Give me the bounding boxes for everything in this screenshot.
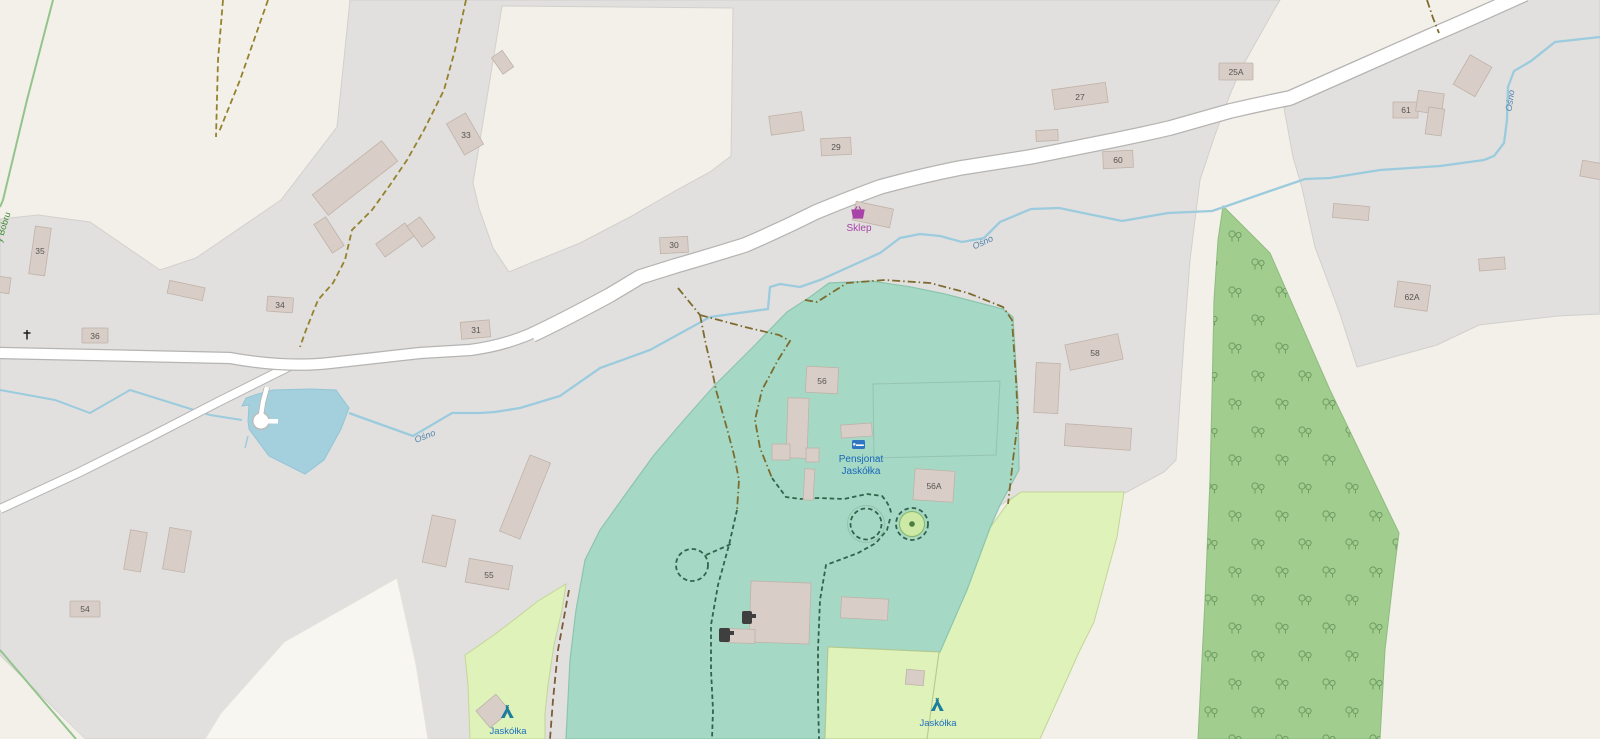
svg-text:29: 29 bbox=[831, 142, 841, 152]
svg-text:56A: 56A bbox=[926, 481, 941, 491]
svg-text:62A: 62A bbox=[1404, 292, 1419, 302]
svg-text:54: 54 bbox=[80, 604, 90, 614]
svg-text:60: 60 bbox=[1113, 155, 1123, 165]
svg-text:55: 55 bbox=[484, 570, 494, 580]
svg-text:61: 61 bbox=[1401, 105, 1411, 115]
svg-text:34: 34 bbox=[275, 300, 285, 310]
svg-text:58: 58 bbox=[1090, 348, 1100, 358]
svg-text:Jaskółka: Jaskółka bbox=[842, 466, 881, 477]
svg-text:Sklep: Sklep bbox=[846, 223, 871, 234]
svg-text:Pensjonat: Pensjonat bbox=[839, 454, 884, 465]
svg-text:30: 30 bbox=[669, 240, 679, 250]
svg-text:56: 56 bbox=[817, 376, 827, 386]
svg-text:31: 31 bbox=[471, 325, 481, 335]
svg-text:36: 36 bbox=[90, 331, 100, 341]
svg-text:27: 27 bbox=[1075, 92, 1085, 102]
svg-text:Jaskółka: Jaskółka bbox=[920, 718, 958, 729]
svg-text:35: 35 bbox=[35, 246, 45, 256]
svg-text:25A: 25A bbox=[1228, 67, 1243, 77]
svg-text:33: 33 bbox=[461, 130, 471, 140]
svg-text:Jaskółka: Jaskółka bbox=[490, 726, 528, 737]
